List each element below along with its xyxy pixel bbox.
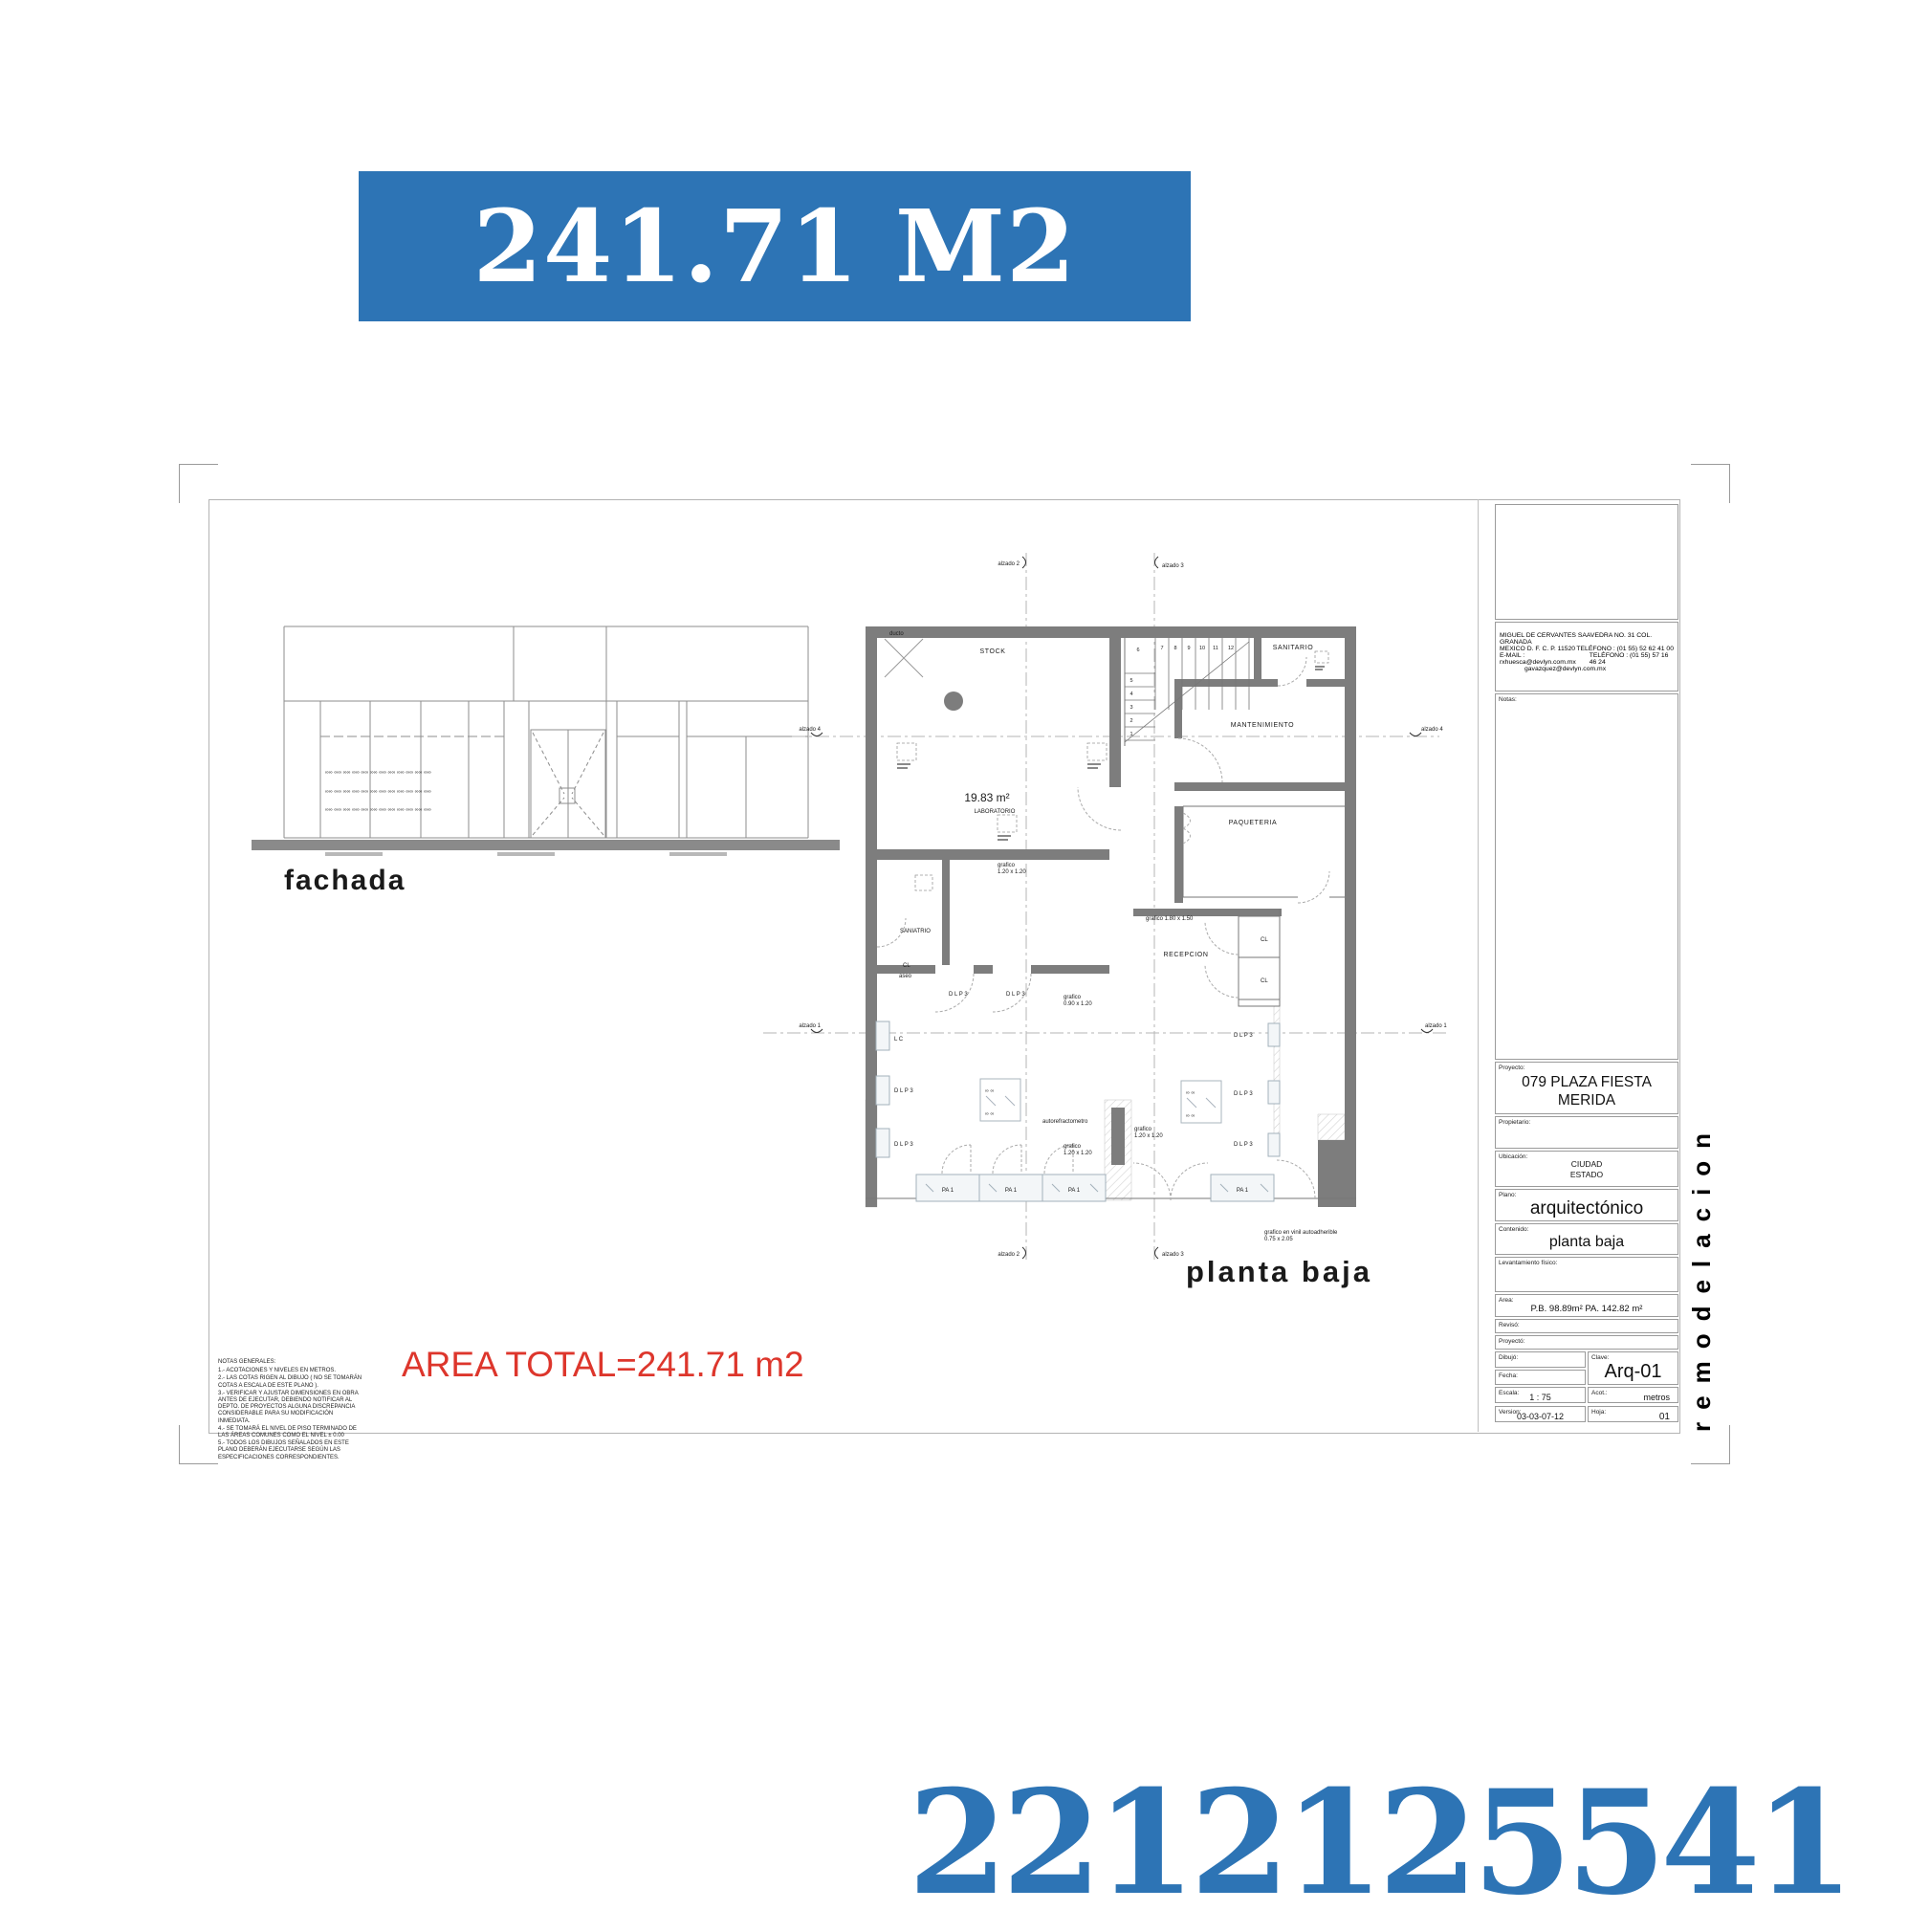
label-lc: L C — [894, 1037, 904, 1043]
grafico-label: grafico — [1064, 995, 1082, 1000]
room-label-aseo: aseo — [899, 974, 912, 979]
plano-value: arquitectónico — [1496, 1190, 1678, 1219]
lab-area-value: 19.83 m² — [964, 791, 1009, 804]
address-line: MIGUEL DE CERVANTES SAAVEDRA NO. 31 COL.… — [1500, 632, 1674, 646]
titleblock-levantamiento-box: Levantamiento físico: — [1495, 1257, 1678, 1292]
ducto-symbol — [885, 639, 923, 677]
fachada-door — [531, 730, 605, 838]
stair-number: 3 — [1129, 705, 1132, 711]
dlp3-label: D L P 3 — [1234, 1091, 1253, 1097]
titleblock-ubicacion-box: Ubicación: CIUDAD ESTADO — [1495, 1151, 1678, 1187]
ubicacion-ciudad: CIUDAD — [1496, 1159, 1678, 1170]
closet-label: CL — [1261, 937, 1268, 943]
room-label-stock: STOCK — [980, 648, 1006, 655]
titleblock-clave-box: Clave: Arq-01 — [1588, 1351, 1678, 1385]
floor-plan-drawing: 6 7 8 9 10 11 12 5 4 3 2 1 — [756, 526, 1468, 1291]
stair-number: 7 — [1160, 646, 1163, 651]
display-cases — [876, 1021, 1280, 1201]
grafico-label: grafico en vinil autoadherible — [1264, 1230, 1338, 1236]
stair-number: 6 — [1136, 648, 1139, 653]
titleblock-logo-box — [1495, 504, 1678, 620]
grafico-size: 0.75 x 2.05 — [1264, 1237, 1293, 1242]
stair-number: 2 — [1129, 718, 1132, 724]
fachada-lines — [284, 626, 808, 838]
titleblock-propietario-box: Propietario: — [1495, 1116, 1678, 1149]
general-note-item: 5.- TODOS LOS DIBUJOS SEÑALADOS EN ESTE … — [218, 1440, 363, 1461]
grafico-label: grafico 1.80 x 1.50 — [1146, 916, 1194, 922]
titleblock-area-box: Area: P.B. 98.89m² PA. 142.82 m² — [1495, 1294, 1678, 1317]
titleblock-proyecto2-box: Proyectó: — [1495, 1335, 1678, 1350]
propietario-label: Propietario: — [1499, 1119, 1530, 1126]
email: gavazquez@devlyn.com.mx — [1500, 666, 1674, 672]
glasses-row: ∞∞ ∞∞ ∞∞ ∞∞ ∞∞ ∞∞ ∞∞ ∞∞ ∞∞ ∞∞ ∞∞ ∞∞ — [325, 789, 431, 795]
dlp3-label: D L P 3 — [949, 992, 968, 998]
footer-number: 2212125541 — [908, 1771, 1849, 1915]
title-block: MIGUEL DE CERVANTES SAAVEDRA NO. 31 COL.… — [1495, 504, 1678, 1422]
axis-label: alzado 3 — [1162, 563, 1184, 569]
axis-label: alzado 2 — [998, 561, 1020, 567]
room-label-saniatrio: SANIATRIO — [900, 929, 931, 934]
general-note-item: 3.- VERIFICAR Y AJUSTAR DIMENSIONES EN O… — [218, 1391, 363, 1425]
grafico-label: grafico — [1064, 1144, 1082, 1150]
pa1-label: PA 1 — [1005, 1188, 1018, 1194]
grafico-label: grafico — [998, 863, 1016, 868]
ground-joint — [497, 852, 555, 856]
axis-label: alzado 3 — [1162, 1252, 1184, 1258]
address-line: MEXICO D. F. C. P. 11520 — [1500, 646, 1575, 652]
stair-number: 12 — [1228, 646, 1234, 651]
ground-bar — [252, 840, 840, 850]
dibujo-label: Dibujó: — [1499, 1354, 1518, 1361]
stair-number: 9 — [1187, 646, 1190, 651]
grafico-label: grafico — [1134, 1127, 1152, 1132]
titleblock-version-box: Version: 03-03-07-12 — [1495, 1406, 1586, 1422]
hoja-label: Hoja: — [1591, 1409, 1606, 1416]
ground-joint — [325, 852, 383, 856]
ground-joint — [669, 852, 727, 856]
phone: TELÉFONO : (01 55) 57 16 46 24 — [1590, 652, 1674, 666]
room-label-ducto: ducto — [889, 631, 904, 637]
dlp3-label: D L P 3 — [1234, 1142, 1253, 1148]
contenido-label: Contenido: — [1499, 1226, 1528, 1233]
general-note-item: 4.- SE TOMARÁ EL NIVEL DE PISO TERMINADO… — [218, 1426, 363, 1439]
page: 241.71 M2 ∞∞ ∞∞ ∞∞ ∞∞ ∞∞ ∞∞ ∞∞ ∞∞ — [0, 0, 1908, 1932]
glasses-pair: ∞ ∞ — [985, 1088, 994, 1094]
general-note-item: 1.- ACOTACIONES Y NIVELES EN METROS. — [218, 1368, 363, 1374]
dlp3-label: D L P 3 — [1006, 992, 1025, 998]
axis-label: alzado 1 — [1425, 1023, 1447, 1029]
stair-number: 4 — [1129, 692, 1132, 697]
stair-number: 8 — [1173, 646, 1176, 651]
titleblock-divider — [1478, 499, 1479, 1432]
titleblock-plano-box: Plano: arquitectónico — [1495, 1189, 1678, 1221]
room-label-paqueteria: PAQUETERIA — [1229, 820, 1278, 826]
ubicacion-estado: ESTADO — [1496, 1170, 1678, 1180]
area-banner: 241.71 M2 — [359, 171, 1191, 321]
axis-label: alzado 1 — [799, 1023, 821, 1029]
general-notes: NOTAS GENERALES: 1.- ACOTACIONES Y NIVEL… — [218, 1359, 363, 1462]
dlp3-label: D L P 3 — [894, 1088, 913, 1094]
phone: TELÉFONO : (01 55) 52 62 41 00 — [1576, 646, 1674, 652]
pa1-label: PA 1 — [942, 1188, 954, 1194]
pa1-label: PA 1 — [1237, 1188, 1249, 1194]
stair-number: 1 — [1129, 732, 1132, 737]
area-value: P.B. 98.89m² PA. 142.82 m² — [1496, 1295, 1678, 1314]
closet-label: CL — [1261, 978, 1268, 984]
closet-label: CL — [903, 963, 910, 969]
proyecto-label: Proyecto: — [1499, 1065, 1524, 1071]
area-label: Area: — [1499, 1297, 1514, 1304]
grafico-size: 1.20 x 1.20 — [1134, 1133, 1163, 1139]
stair-number: 5 — [1129, 678, 1132, 684]
glasses-pair: ∞ ∞ — [1186, 1090, 1195, 1096]
axis-label: alzado 2 — [998, 1252, 1020, 1258]
proyecto2-label: Proyectó: — [1499, 1338, 1524, 1345]
titleblock-address-box: MIGUEL DE CERVANTES SAAVEDRA NO. 31 COL.… — [1495, 622, 1678, 692]
general-note-item: 2.- LAS COTAS RIGEN AL DIBUJO ( NO SE TO… — [218, 1375, 363, 1389]
titleblock-contenido-box: Contenido: planta baja — [1495, 1223, 1678, 1255]
furniture-tables: ∞ ∞ ∞ ∞ ∞ ∞ ∞ ∞ — [980, 1079, 1221, 1123]
titleblock-reviso-box: Revisó: — [1495, 1319, 1678, 1333]
glasses-pair: ∞ ∞ — [1186, 1113, 1195, 1119]
clave-label: Clave: — [1591, 1354, 1609, 1361]
room-label-recepcion: RECEPCION — [1163, 952, 1208, 958]
escala-label: Escala: — [1499, 1390, 1519, 1396]
dlp3-label: D L P 3 — [1234, 1033, 1253, 1039]
plan-title: planta baja — [1186, 1255, 1372, 1288]
stair-number: 11 — [1213, 646, 1218, 651]
levantamiento-label: Levantamiento físico: — [1499, 1260, 1557, 1266]
reviso-label: Revisó: — [1499, 1322, 1520, 1328]
column — [944, 692, 963, 711]
room-label-laboratorio: LABORATORIO — [975, 809, 1016, 815]
acot-label: Acot.: — [1591, 1390, 1608, 1396]
dlp3-label: D L P 3 — [894, 1142, 913, 1148]
fachada-glasses: ∞∞ ∞∞ ∞∞ ∞∞ ∞∞ ∞∞ ∞∞ ∞∞ ∞∞ ∞∞ ∞∞ ∞∞ ∞∞ ∞… — [325, 770, 431, 813]
remodelacion-label: remodelacion — [1687, 1054, 1717, 1432]
glasses-row: ∞∞ ∞∞ ∞∞ ∞∞ ∞∞ ∞∞ ∞∞ ∞∞ ∞∞ ∞∞ ∞∞ ∞∞ — [325, 770, 431, 776]
ubicacion-label: Ubicación: — [1499, 1153, 1527, 1160]
titleblock-escala-box: Escala: 1 : 75 — [1495, 1387, 1586, 1403]
grafico-size: 1.20 x 1.20 — [1064, 1151, 1092, 1156]
axis-label: alzado 4 — [799, 727, 821, 733]
fachada-drawing: ∞∞ ∞∞ ∞∞ ∞∞ ∞∞ ∞∞ ∞∞ ∞∞ ∞∞ ∞∞ ∞∞ ∞∞ ∞∞ ∞… — [244, 588, 842, 904]
axis-label: alzado 4 — [1421, 727, 1443, 733]
glasses-pair: ∞ ∞ — [985, 1111, 994, 1117]
area-total-note: AREA TOTAL=241.71 m2 — [402, 1345, 804, 1385]
general-notes-title: NOTAS GENERALES: — [218, 1359, 363, 1366]
titleblock-acot-box: Acot.: metros — [1588, 1387, 1678, 1403]
glasses-row: ∞∞ ∞∞ ∞∞ ∞∞ ∞∞ ∞∞ ∞∞ ∞∞ ∞∞ ∞∞ ∞∞ ∞∞ — [325, 807, 431, 813]
area-banner-text: 241.71 M2 — [473, 187, 1077, 305]
grafico-size: 1.20 x 1.20 — [998, 869, 1026, 875]
pa1-label: PA 1 — [1068, 1188, 1081, 1194]
fecha-label: Fecha: — [1499, 1372, 1518, 1379]
label-autorefractometro: autorefractometro — [1042, 1119, 1088, 1125]
titleblock-dibujo-box: Dibujó: — [1495, 1351, 1586, 1368]
titleblock-fecha-box: Fecha: — [1495, 1370, 1586, 1385]
room-label-sanitario: SANITARIO — [1273, 645, 1314, 651]
notas-label: Notas: — [1499, 696, 1517, 703]
crop-mark-top-right — [1691, 464, 1730, 503]
email: E-MAIL : rxhuesca@devlyn.com.mx — [1500, 652, 1590, 666]
plano-label: Plano: — [1499, 1192, 1516, 1198]
titleblock-notas-box: Notas: — [1495, 693, 1678, 1060]
room-label-mantenimiento: MANTENIMIENTO — [1231, 722, 1294, 729]
titleblock-proyecto-box: Proyecto: 079 PLAZA FIESTA MERIDA — [1495, 1062, 1678, 1114]
stair-number: 10 — [1199, 646, 1205, 651]
version-label: Version: — [1499, 1409, 1522, 1416]
grafico-size: 0.90 x 1.20 — [1064, 1001, 1092, 1007]
crop-mark-top-left — [179, 464, 218, 503]
fachada-title: fachada — [284, 865, 406, 896]
titleblock-hoja-box: Hoja: 01 — [1588, 1406, 1678, 1422]
